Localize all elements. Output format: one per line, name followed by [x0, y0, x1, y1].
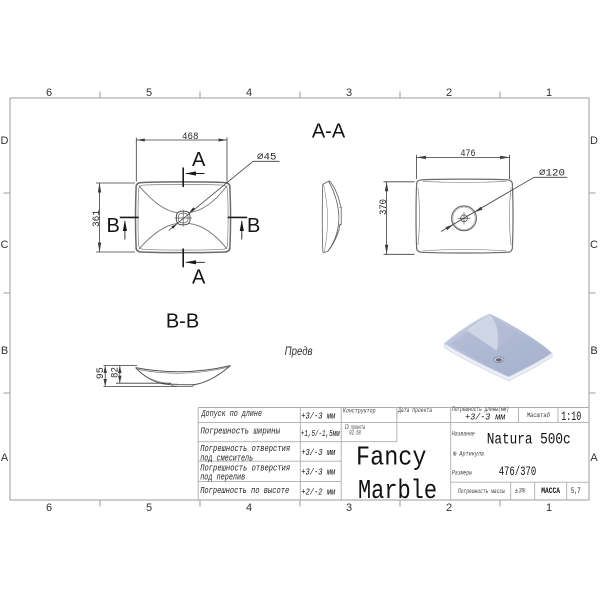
svg-text:2: 2: [446, 87, 452, 99]
svg-text:370: 370: [378, 199, 390, 215]
svg-text:476: 476: [461, 148, 476, 160]
svg-text:B: B: [590, 345, 597, 357]
svg-text:C: C: [1, 239, 9, 251]
svg-text:Масштаб: Масштаб: [527, 412, 551, 419]
svg-text:3: 3: [346, 87, 352, 99]
svg-text:A-A: A-A: [312, 121, 346, 143]
svg-text:B: B: [247, 215, 260, 237]
svg-text:+3/-3 мм: +3/-3 мм: [301, 467, 335, 478]
svg-text:3: 3: [346, 502, 352, 514]
svg-text:B: B: [1, 345, 8, 357]
svg-text:B-B: B-B: [166, 311, 199, 333]
svg-text:A: A: [192, 267, 206, 289]
svg-text:2: 2: [446, 502, 452, 514]
svg-text:Предв: Предв: [285, 344, 313, 358]
svg-text:95: 95: [95, 367, 107, 379]
svg-text:B: B: [107, 215, 120, 237]
svg-text:476/370: 476/370: [499, 464, 537, 479]
svg-text:Название: Название: [452, 431, 475, 438]
svg-text:D: D: [1, 135, 9, 147]
svg-text:±3%: ±3%: [515, 488, 526, 495]
svg-text:5,7: 5,7: [571, 487, 581, 496]
svg-text:Погрешность по высоте: Погрешность по высоте: [200, 485, 289, 496]
svg-text:1:10: 1:10: [561, 409, 581, 424]
svg-text:№ Артикула: № Артикула: [452, 451, 484, 458]
svg-text:∅120: ∅120: [539, 168, 565, 180]
svg-text:C: C: [590, 239, 598, 251]
svg-text:Дата проекта: Дата проекта: [397, 407, 432, 414]
svg-text:под перелив: под перелив: [200, 472, 245, 483]
svg-text:+3/-3 мм: +3/-3 мм: [465, 412, 505, 423]
svg-text:A: A: [192, 149, 206, 171]
svg-text:Marble: Marble: [358, 477, 437, 507]
svg-text:Natura 500c: Natura 500c: [487, 431, 571, 449]
svg-text:∅45: ∅45: [257, 151, 277, 163]
svg-text:A: A: [590, 452, 598, 464]
svg-text:МАССА: МАССА: [541, 487, 560, 496]
svg-text:Допуск по длине: Допуск по длине: [201, 408, 262, 419]
svg-text:361: 361: [91, 210, 103, 227]
svg-text:1: 1: [546, 87, 552, 99]
svg-text:A: A: [1, 452, 9, 464]
svg-text:6: 6: [46, 87, 52, 99]
svg-text:+3/-3 мм: +3/-3 мм: [301, 447, 335, 458]
svg-text:+1,5/-1,5мм: +1,5/-1,5мм: [301, 428, 340, 439]
svg-text:6: 6: [46, 502, 52, 514]
svg-text:02.58: 02.58: [349, 430, 361, 437]
svg-text:Погрешность ширины: Погрешность ширины: [201, 426, 281, 437]
svg-text:+3/-3 мм: +3/-3 мм: [301, 410, 335, 421]
svg-text:468: 468: [182, 131, 199, 143]
svg-text:82: 82: [110, 367, 122, 378]
svg-text:Fancy: Fancy: [356, 443, 427, 473]
svg-text:1: 1: [546, 502, 552, 514]
svg-text:D: D: [590, 135, 598, 147]
svg-text:Конструктор: Конструктор: [343, 408, 376, 415]
svg-text:Погрешность массы: Погрешность массы: [458, 488, 505, 495]
svg-text:+2/-2 мм: +2/-2 мм: [301, 486, 335, 497]
svg-text:5: 5: [146, 502, 152, 514]
svg-text:4: 4: [246, 502, 252, 514]
svg-text:4: 4: [246, 87, 252, 99]
svg-text:Размеры: Размеры: [452, 469, 472, 476]
svg-text:5: 5: [146, 87, 152, 99]
